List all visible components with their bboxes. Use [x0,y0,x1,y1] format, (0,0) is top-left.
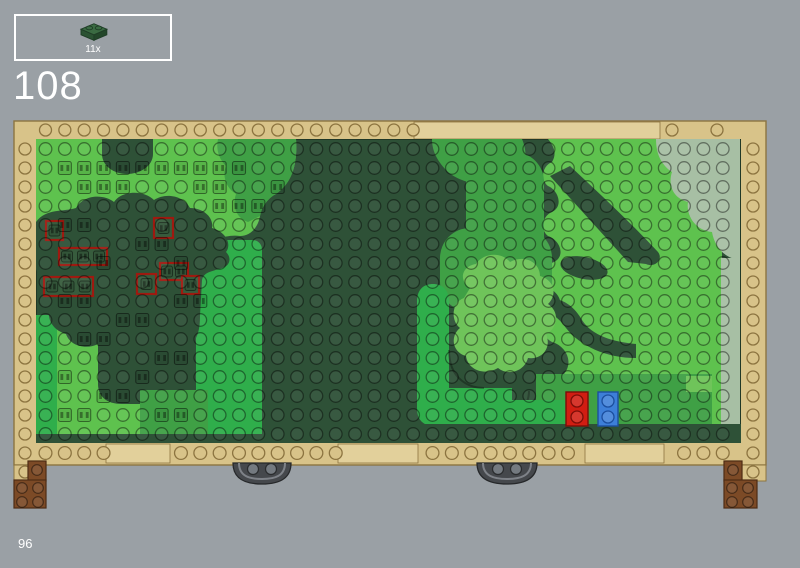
step-number: 108 [13,64,83,109]
parts-callout: 11x [14,14,172,61]
part-icon-plate-1x2 [73,20,113,44]
page: 11x 108 96 [0,0,800,568]
wheel-arches [233,463,537,484]
support-legs [14,461,757,508]
model-render [0,0,800,568]
page-number: 96 [18,536,32,551]
part-count-label: 11x [85,45,100,55]
